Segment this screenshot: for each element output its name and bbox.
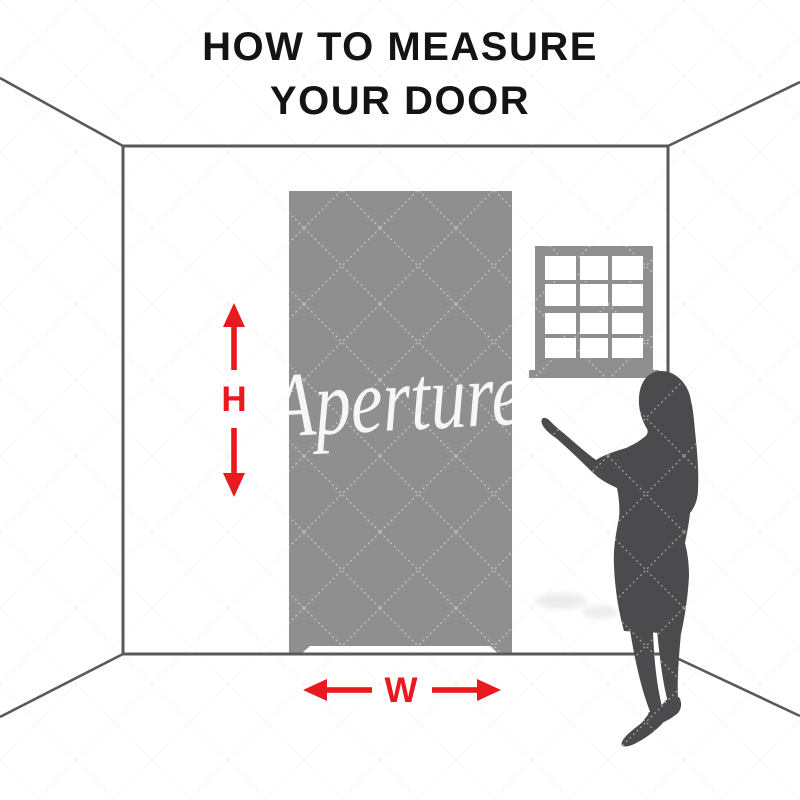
page-title: HOW TO MEASURE YOUR DOOR: [0, 20, 800, 128]
width-arrow-right-shaft: [432, 687, 478, 693]
height-arrow-down-shaft: [231, 428, 237, 474]
width-arrow-left-shaft: [324, 687, 372, 693]
page-title-line2: YOUR DOOR: [0, 74, 800, 128]
width-label: W: [384, 671, 417, 710]
height-label: H: [221, 380, 246, 419]
height-arrow-up-shaft: [231, 324, 237, 370]
page-title-line1: HOW TO MEASURE: [0, 20, 800, 74]
how-to-measure-diagram: HOW TO MEASURE YOUR DOOR: [0, 0, 800, 800]
